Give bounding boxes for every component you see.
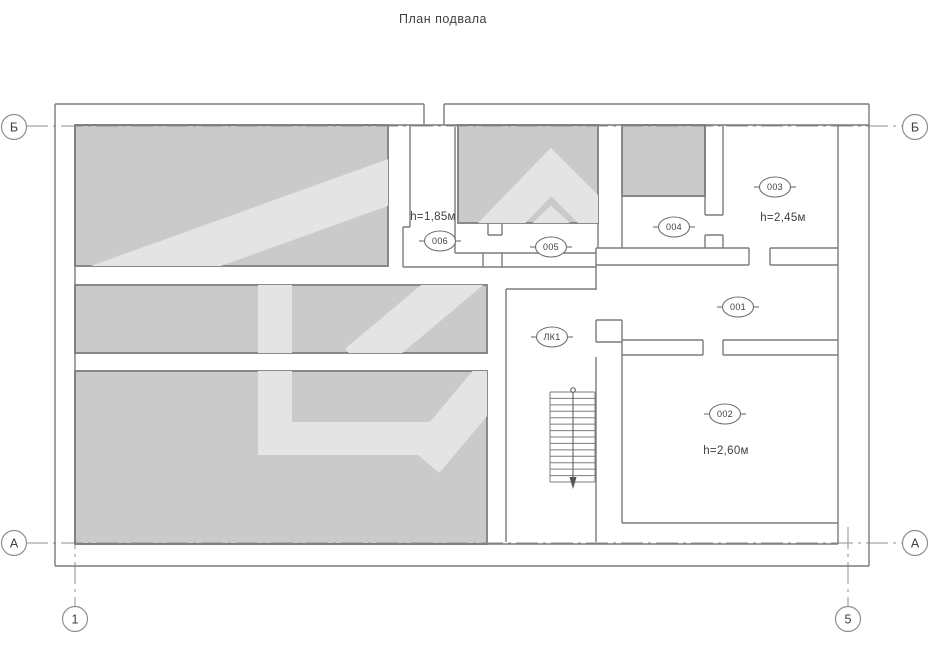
floor-plan-page: План подвала [0, 0, 932, 645]
staircase [550, 388, 595, 489]
room-label-003: 003 [754, 177, 796, 197]
room-number-001: 001 [730, 302, 746, 312]
stair-start-dot [571, 388, 576, 393]
axis-label-b-right: Б [911, 121, 919, 135]
height-label-002: h=2,60м [703, 445, 749, 457]
room-number-006: 006 [432, 236, 448, 246]
floor-plan-canvas: План подвала [0, 0, 932, 645]
plan-title: План подвала [399, 12, 487, 26]
room-label-004: 004 [653, 217, 695, 237]
watermark-base-bottom [258, 422, 436, 455]
room-number-003: 003 [767, 182, 783, 192]
axis-label-b-left: Б [10, 121, 18, 135]
height-label-006: h=1,85м [410, 211, 456, 223]
axis-label-a-right: А [911, 537, 920, 551]
stair-label-lk1: ЛК1 [531, 327, 573, 347]
axis-label-1: 1 [72, 613, 79, 627]
height-label-003: h=2,45м [760, 212, 806, 224]
stair-arrow-icon [570, 477, 577, 489]
room-number-002: 002 [717, 409, 733, 419]
room-number-005: 005 [543, 242, 559, 252]
room-label-005: 005 [530, 237, 572, 257]
stair-number-lk1: ЛК1 [543, 332, 560, 342]
room-fill-top-right-small [622, 125, 705, 196]
room-label-002: 002 [704, 404, 746, 424]
watermark-bar-middle [258, 285, 292, 353]
room-label-001: 001 [717, 297, 759, 317]
room-number-004: 004 [666, 222, 682, 232]
axis-label-5: 5 [845, 613, 852, 627]
axis-label-a-left: А [10, 537, 19, 551]
